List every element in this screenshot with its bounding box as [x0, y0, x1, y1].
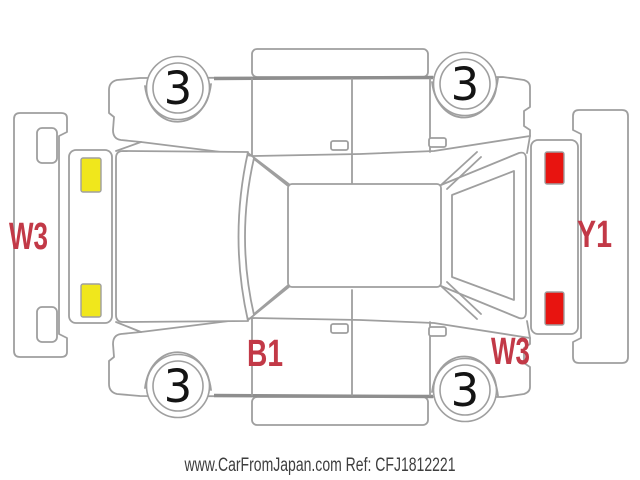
- tire-rating: 3: [451, 364, 480, 417]
- damage-code-bottom-right: W3: [491, 331, 530, 373]
- a-pillar-folds: [248, 153, 292, 320]
- car-condition-diagram: 3 3 3 3 W3 Y1 B1 W3 www.CarFromJapan.com…: [0, 0, 640, 480]
- damage-code-left: W3: [9, 216, 48, 258]
- rear-glass: [452, 171, 514, 300]
- damage-code-bottom-center: B1: [247, 333, 283, 375]
- door-handle-icon: [331, 141, 348, 150]
- belt-edge-top: [214, 78, 433, 79]
- headlamp-icon: [37, 307, 57, 342]
- watermark-text: www.CarFromJapan.com Ref: CFJ1812221: [184, 455, 456, 476]
- belt-edge-bottom: [214, 396, 433, 397]
- door-handle-icon: [429, 327, 446, 336]
- tire-rating: 3: [451, 58, 480, 111]
- windshield: [245, 158, 254, 315]
- headlamp-icon: [37, 128, 57, 163]
- tire-rating: 3: [164, 62, 193, 115]
- door-handle-icon: [331, 324, 348, 333]
- hood: [116, 151, 248, 322]
- door-handle-icon: [429, 138, 446, 147]
- damage-marker-yellow: [81, 284, 101, 317]
- tire-rating: 3: [164, 360, 193, 413]
- damage-code-right: Y1: [577, 214, 612, 256]
- side-sill-band-top: [252, 49, 428, 77]
- damage-marker-yellow: [81, 158, 101, 192]
- car-condition-diagram-page: 3 3 3 3 W3 Y1 B1 W3 www.CarFromJapan.com…: [0, 0, 640, 480]
- roof: [288, 184, 441, 287]
- damage-marker-red: [545, 152, 564, 184]
- side-sill-band-bottom: [252, 397, 428, 425]
- damage-marker-red: [545, 292, 564, 325]
